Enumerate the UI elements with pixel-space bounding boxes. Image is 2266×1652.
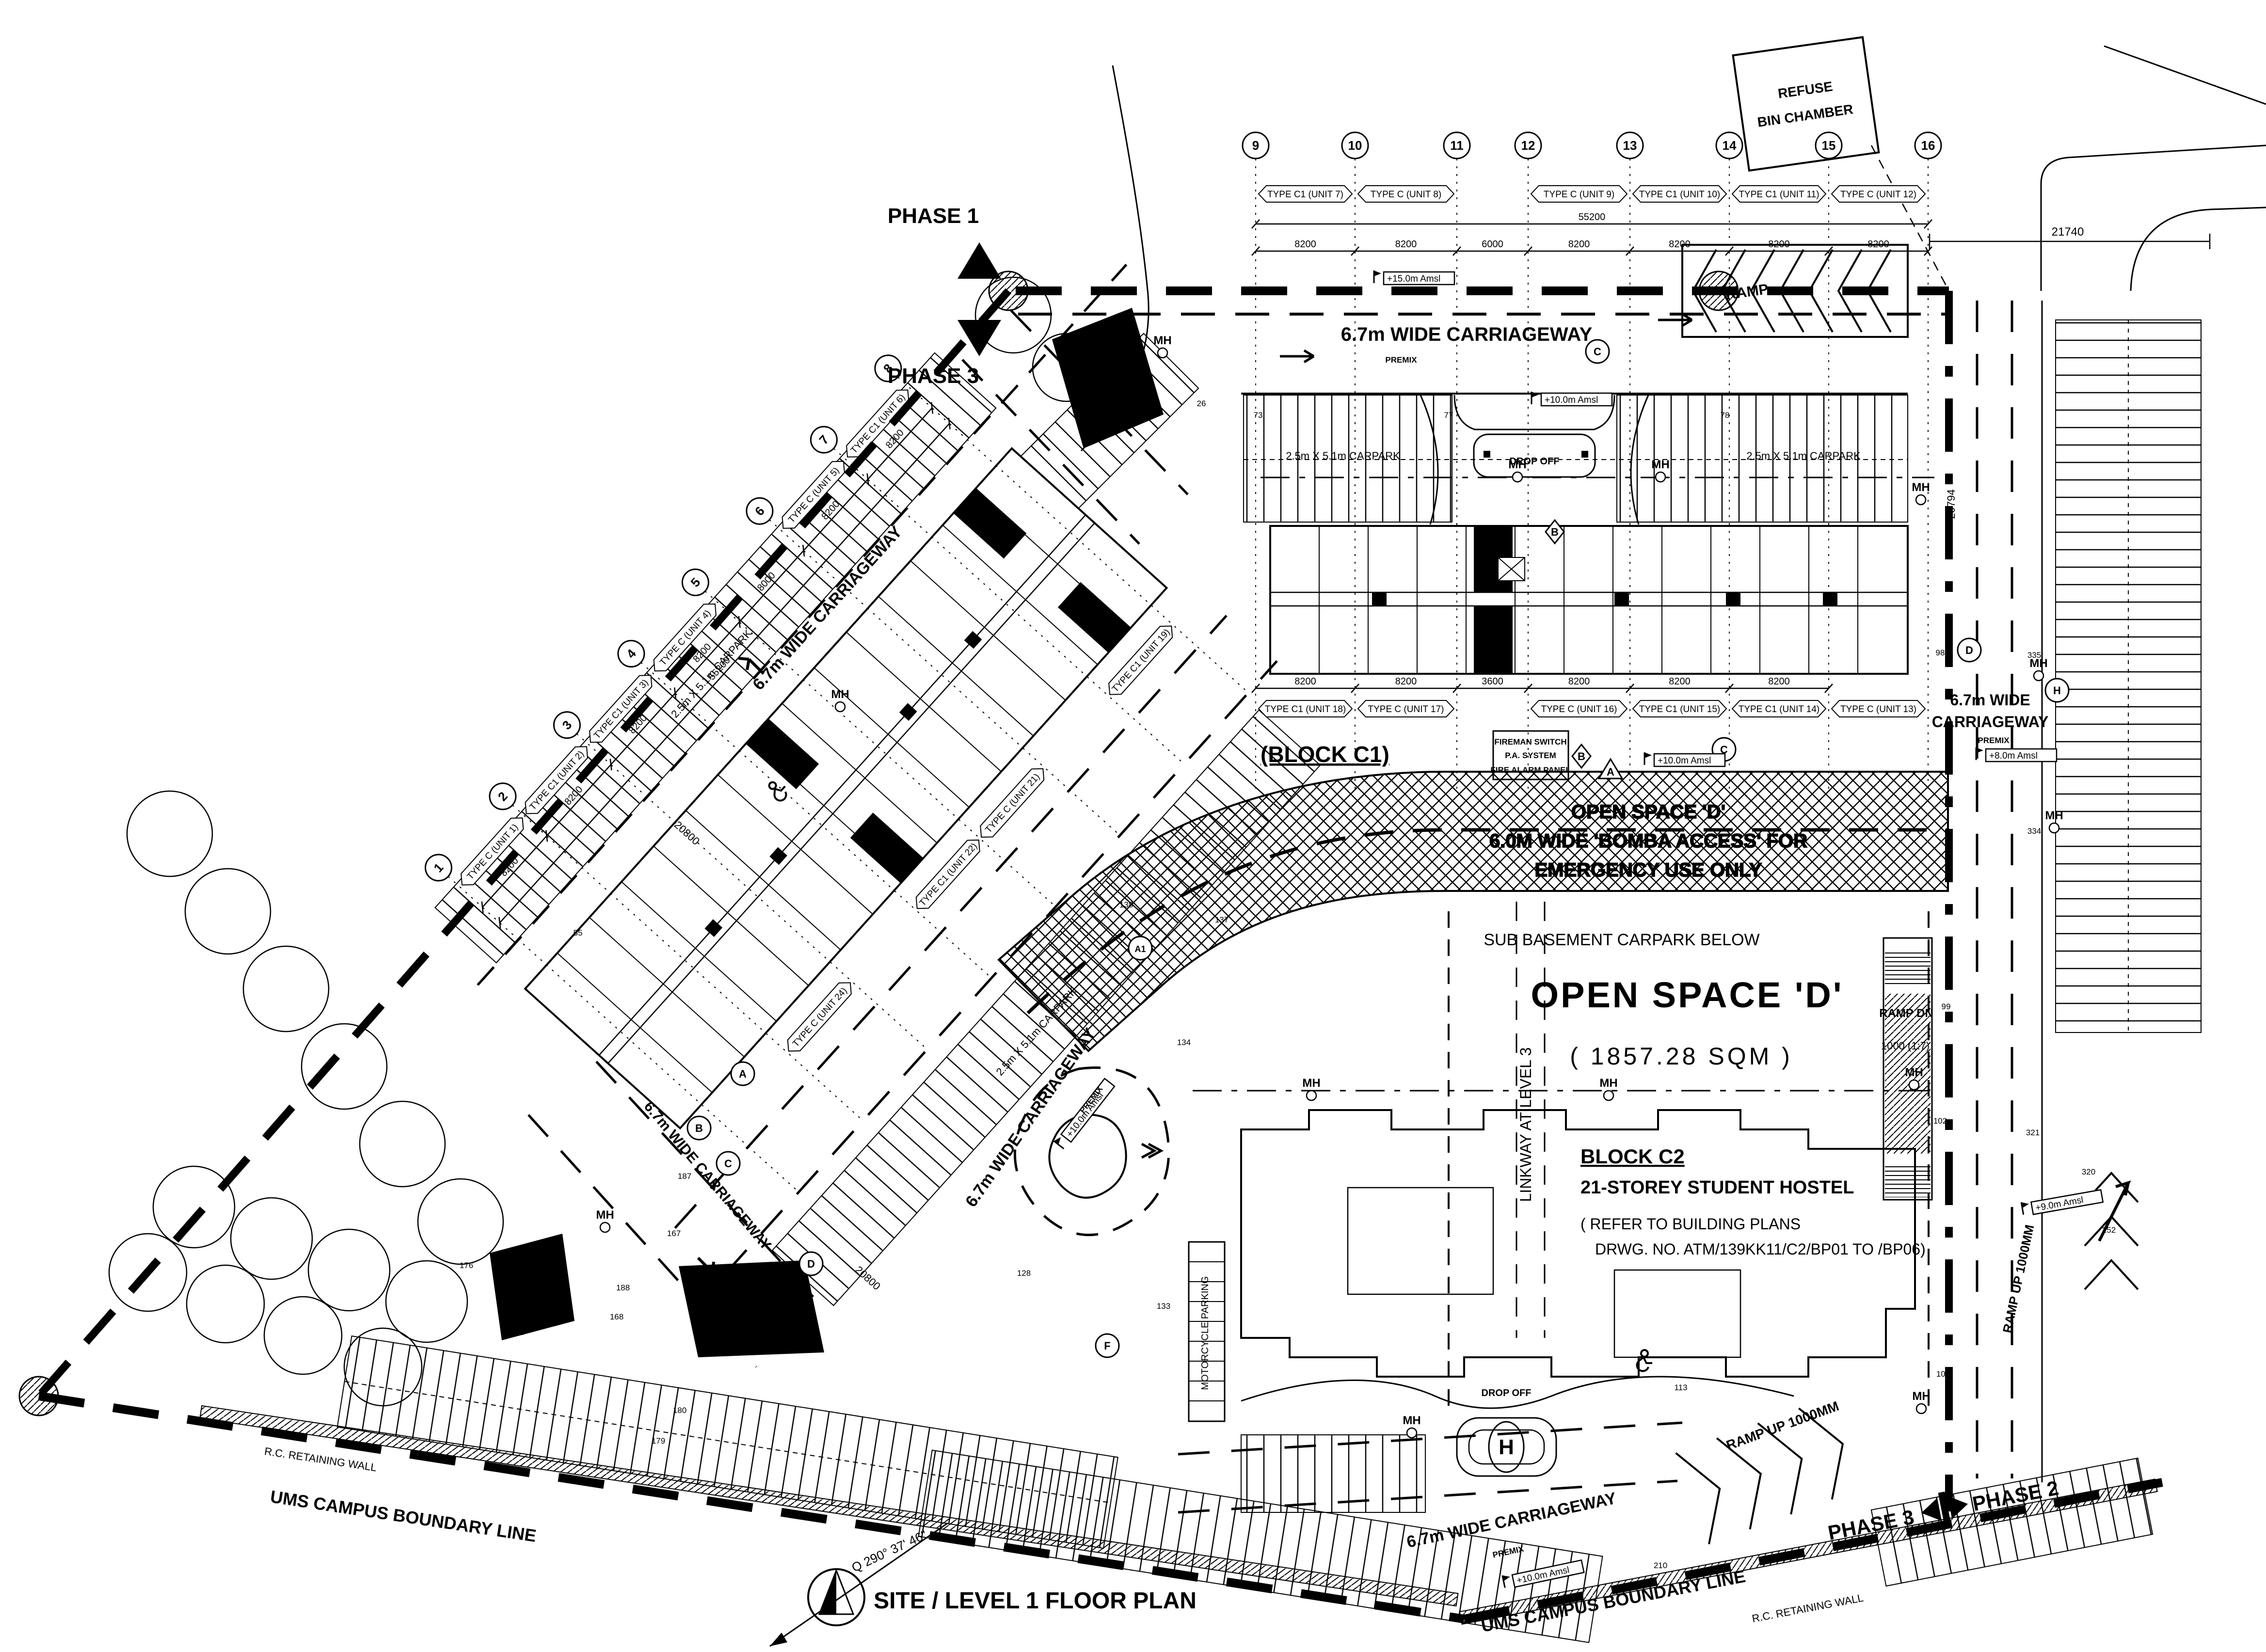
unit-type-label: TYPE C (UNIT 13) bbox=[1840, 704, 1916, 715]
stall-ref-number: 180 bbox=[673, 1406, 686, 1415]
unit-type-label: TYPE C1 (UNIT 15) bbox=[1639, 704, 1721, 715]
ref-letter: H bbox=[2053, 684, 2061, 697]
dim-20794: 20794 bbox=[1945, 489, 1957, 519]
stall-ref-number: 335 bbox=[2027, 651, 2041, 660]
ref-letter: D bbox=[1965, 644, 1973, 656]
tree bbox=[264, 1297, 342, 1374]
premix-label: PREMIX bbox=[1978, 736, 2010, 745]
ref-letter: A bbox=[739, 1068, 747, 1080]
dim-value: 8200 bbox=[1768, 239, 1790, 250]
unit-type-label: TYPE C (UNIT 17) bbox=[1368, 704, 1444, 715]
stall-ref-number: 210 bbox=[1654, 1561, 1667, 1570]
stall-ref-number: 26 bbox=[1197, 399, 1206, 408]
stall-ref-number: 167 bbox=[667, 1229, 681, 1238]
dim-value: 8200 bbox=[1395, 239, 1417, 250]
unit-type-label: TYPE C (UNIT 9) bbox=[1544, 190, 1614, 200]
tree bbox=[308, 1229, 390, 1311]
dim-total: 55200 bbox=[1579, 212, 1606, 222]
dim-value: 8200 bbox=[1568, 239, 1590, 250]
motorcycle-parking-label: MOTORCYCLE PARKING bbox=[1200, 1276, 1211, 1390]
stall-ref-number: 73 bbox=[1254, 411, 1263, 420]
tree bbox=[231, 1198, 312, 1279]
unit-type-label: TYPE C1 (UNIT 10) bbox=[1639, 190, 1721, 200]
dim-value: 6000 bbox=[1482, 239, 1503, 250]
manhole-icon bbox=[1513, 472, 1522, 482]
tree bbox=[243, 946, 329, 1032]
stall-ref-number: 77 bbox=[1444, 411, 1453, 420]
manhole-label: MH bbox=[1153, 334, 1171, 347]
stall-ref-number: 104 bbox=[1936, 1369, 1950, 1379]
manhole-label: MH bbox=[1905, 1066, 1923, 1079]
block-c2-line3: ( REFER TO BUILDING PLANS bbox=[1580, 1215, 1801, 1233]
unit-type-label: TYPE C1 (UNIT 18) bbox=[1265, 704, 1346, 715]
stall-ref-number: 55 bbox=[574, 928, 583, 937]
dim-value: 8200 bbox=[1669, 239, 1691, 250]
level-value: +15.0m Amsl bbox=[1387, 274, 1440, 284]
grid-bubble-number: 16 bbox=[1921, 138, 1935, 153]
grid-bubble-number: 13 bbox=[1623, 138, 1637, 153]
stall-ref-number: 334 bbox=[2027, 826, 2041, 836]
stall-ref-number: 178 bbox=[511, 1328, 525, 1337]
grid-bubble-number: 11 bbox=[1450, 138, 1464, 153]
boundary-corner-marker bbox=[19, 1377, 58, 1415]
unit-type-label: TYPE C1 (UNIT 14) bbox=[1739, 704, 1820, 715]
sub-basement-label: SUB BASEMENT CARPARK BELOW bbox=[1484, 931, 1759, 949]
site-floor-plan: 2.5m X 5.1m CARPARK 2.5m X 5.1m CARPARK … bbox=[0, 0, 2266, 1652]
stall-ref-number: 98 bbox=[1936, 648, 1945, 657]
tree bbox=[386, 1261, 467, 1342]
block-c1-label: (BLOCK C1) bbox=[1261, 742, 1389, 767]
block-c1-north-wing bbox=[1270, 526, 1908, 674]
dim-value: 8200 bbox=[1294, 676, 1316, 687]
tree bbox=[344, 1328, 422, 1406]
stall-ref-number: 133 bbox=[1157, 1302, 1170, 1311]
dim-value: 8200 bbox=[1867, 239, 1889, 250]
manhole-icon bbox=[2049, 823, 2059, 833]
dim-value: 8200 bbox=[1294, 239, 1316, 250]
block-c2-name: BLOCK C2 bbox=[1580, 1145, 1685, 1168]
stall-ref-number: 137 bbox=[1215, 915, 1229, 924]
bomba-line1: OPEN SPACE 'D' bbox=[1571, 801, 1725, 823]
ref-letter: D bbox=[807, 1258, 815, 1270]
grid-bubble-number: 12 bbox=[1521, 138, 1535, 153]
fireman-line1: FIREMAN SWITCH bbox=[1494, 737, 1566, 747]
manhole-icon bbox=[1916, 495, 1926, 505]
ref-letter: B bbox=[695, 1122, 703, 1134]
stall-ref-number: 320 bbox=[2082, 1167, 2095, 1176]
tree bbox=[418, 1179, 503, 1264]
manhole-icon bbox=[1656, 472, 1665, 482]
phase1-label: PHASE 1 bbox=[888, 204, 979, 228]
manhole-label: MH bbox=[1599, 1077, 1617, 1090]
ref-letter: A1 bbox=[1134, 944, 1146, 954]
carriageway-label: 6.7m WIDE CARRIAGEWAY bbox=[1341, 324, 1593, 345]
manhole-icon bbox=[835, 702, 845, 712]
block-c2-line2: 21-STOREY STUDENT HOSTEL bbox=[1580, 1177, 1854, 1198]
unit-type-label: TYPE C1 (UNIT 7) bbox=[1267, 190, 1343, 200]
stall-ref-number: 179 bbox=[652, 1436, 665, 1445]
tree bbox=[360, 1101, 445, 1187]
linkway-label: LINKWAY AT LEVEL 3 bbox=[1517, 1048, 1534, 1202]
manhole-label: MH bbox=[831, 688, 849, 701]
carpark-size-label: 2.5m X 5.1m CARPARK bbox=[1286, 450, 1400, 462]
stall-ref-number: 168 bbox=[610, 1312, 623, 1321]
grid-bubble-number: 15 bbox=[1822, 138, 1836, 153]
manhole-label: MH bbox=[1912, 1390, 1930, 1403]
ref-letter: F bbox=[1104, 1340, 1110, 1352]
dim-21740: 21740 bbox=[2052, 225, 2084, 238]
grid-bubble-number: 9 bbox=[1252, 138, 1259, 153]
plan-title: SITE / LEVEL 1 FLOOR PLAN bbox=[874, 1588, 1197, 1614]
stall-ref-number: 134 bbox=[1177, 1038, 1191, 1047]
dim-value: 8200 bbox=[1768, 676, 1790, 687]
tree bbox=[109, 1234, 187, 1311]
level-marker: +10.0m Amsl bbox=[1532, 392, 1612, 406]
unit-type-label: TYPE C (UNIT 16) bbox=[1541, 704, 1617, 715]
manhole-label: MH bbox=[1912, 481, 1930, 494]
manhole-icon bbox=[1916, 1404, 1926, 1414]
dim-value: 8200 bbox=[1669, 676, 1691, 687]
stall-ref-number: 321 bbox=[2026, 1128, 2040, 1137]
tree bbox=[127, 791, 212, 876]
manhole-icon bbox=[1158, 348, 1167, 358]
stall-ref-number: 113 bbox=[1674, 1383, 1687, 1392]
carriageway-right-l2: CARRIAGEWAY bbox=[1932, 713, 2049, 731]
stall-ref-number: 188 bbox=[616, 1283, 630, 1292]
level-value: +10.0m Amsl bbox=[1658, 756, 1711, 766]
grid-bubble-number: 14 bbox=[1723, 138, 1737, 153]
manhole-icon bbox=[1307, 1091, 1316, 1100]
stall-ref-number: 128 bbox=[1017, 1269, 1031, 1278]
carpark-size-label: 2.5m X 5.1m CARPARK bbox=[1746, 450, 1861, 462]
manhole-label: MH bbox=[1403, 1414, 1420, 1427]
ramp-dn-label: RAMP DN bbox=[1879, 1007, 1933, 1020]
tree bbox=[302, 1024, 387, 1109]
unit-type-label: TYPE C (UNIT 12) bbox=[1840, 190, 1916, 200]
tree bbox=[153, 1166, 235, 1248]
open-space-area: ( 1857.28 SQM ) bbox=[1570, 1043, 1793, 1070]
fireman-line2: P.A. SYSTEM bbox=[1505, 751, 1556, 760]
ref-letter: A bbox=[1607, 766, 1614, 778]
ref-letter: B bbox=[1551, 526, 1559, 538]
existing-structure bbox=[679, 1260, 824, 1357]
stall-ref-number: 78 bbox=[1721, 411, 1730, 420]
ramp-dn-slope: 1000 (1:7) bbox=[1881, 1040, 1930, 1052]
manhole-label: MH bbox=[2045, 809, 2063, 822]
carriageway-right-l1: 6.7m WIDE bbox=[1950, 691, 2030, 709]
phase3-top-label: PHASE 3 bbox=[888, 364, 979, 388]
manhole-icon bbox=[1909, 1080, 1919, 1090]
stall-ref-number: 252 bbox=[2102, 1225, 2116, 1235]
existing-structure bbox=[490, 1234, 574, 1340]
manhole-label: MH bbox=[1302, 1077, 1320, 1090]
dim-value: 8200 bbox=[1568, 676, 1590, 687]
unit-type-label: TYPE C1 (UNIT 11) bbox=[1739, 190, 1819, 200]
stall-ref-number: 102 bbox=[1933, 1116, 1947, 1126]
bomba-line2: 6.0M WIDE 'BOMBA ACCESS' FOR bbox=[1489, 830, 1807, 852]
ref-letter: B bbox=[1578, 750, 1585, 762]
manhole-icon bbox=[600, 1223, 610, 1232]
tree bbox=[187, 1265, 264, 1343]
tree bbox=[1033, 334, 1101, 401]
level-value: +10.0m Amsl bbox=[1545, 395, 1598, 405]
manhole-icon bbox=[1407, 1428, 1417, 1438]
ref-letter: C bbox=[724, 1158, 732, 1170]
fireman-line3: FIRE ALARM PANEL bbox=[1490, 765, 1570, 775]
stall-ref-number: 187 bbox=[678, 1172, 691, 1181]
tree bbox=[185, 869, 271, 954]
manhole-label: MH bbox=[596, 1208, 614, 1222]
ref-letter: C bbox=[1594, 346, 1601, 358]
manhole-label: MH bbox=[1651, 458, 1669, 471]
dim-value: 8200 bbox=[1395, 676, 1417, 687]
drop-off-bottom-label: DROP OFF bbox=[1482, 1388, 1532, 1398]
level-marker: +8.0m Amsl bbox=[1976, 747, 2057, 762]
level-value: +8.0m Amsl bbox=[1989, 751, 2038, 761]
helipad-h-symbol: H bbox=[1499, 1435, 1514, 1459]
premix-label: PREMIX bbox=[1385, 355, 1417, 365]
drop-off-top-label: DROP OFF bbox=[1510, 456, 1560, 467]
level-marker: +10.0m Amsl bbox=[1644, 752, 1725, 766]
manhole-icon bbox=[1604, 1091, 1613, 1100]
bomba-line3: EMERGENCY USE ONLY bbox=[1534, 859, 1762, 881]
dim-value: 3600 bbox=[1482, 676, 1503, 687]
grid-bubble-number: 10 bbox=[1348, 138, 1362, 153]
level-marker: +15.0m Amsl bbox=[1374, 270, 1454, 285]
manhole-icon bbox=[2034, 671, 2043, 681]
stall-ref-number: 138 bbox=[1119, 900, 1133, 909]
unit-type-label: TYPE C (UNIT 8) bbox=[1371, 190, 1441, 200]
block-c2-line4: DRWG. NO. ATM/139KK11/C2/BP01 TO /BP06) bbox=[1595, 1240, 1926, 1258]
stall-ref-number: 99 bbox=[1942, 1002, 1951, 1011]
tree bbox=[975, 277, 1051, 353]
open-space-name: OPEN SPACE 'D' bbox=[1531, 975, 1844, 1015]
